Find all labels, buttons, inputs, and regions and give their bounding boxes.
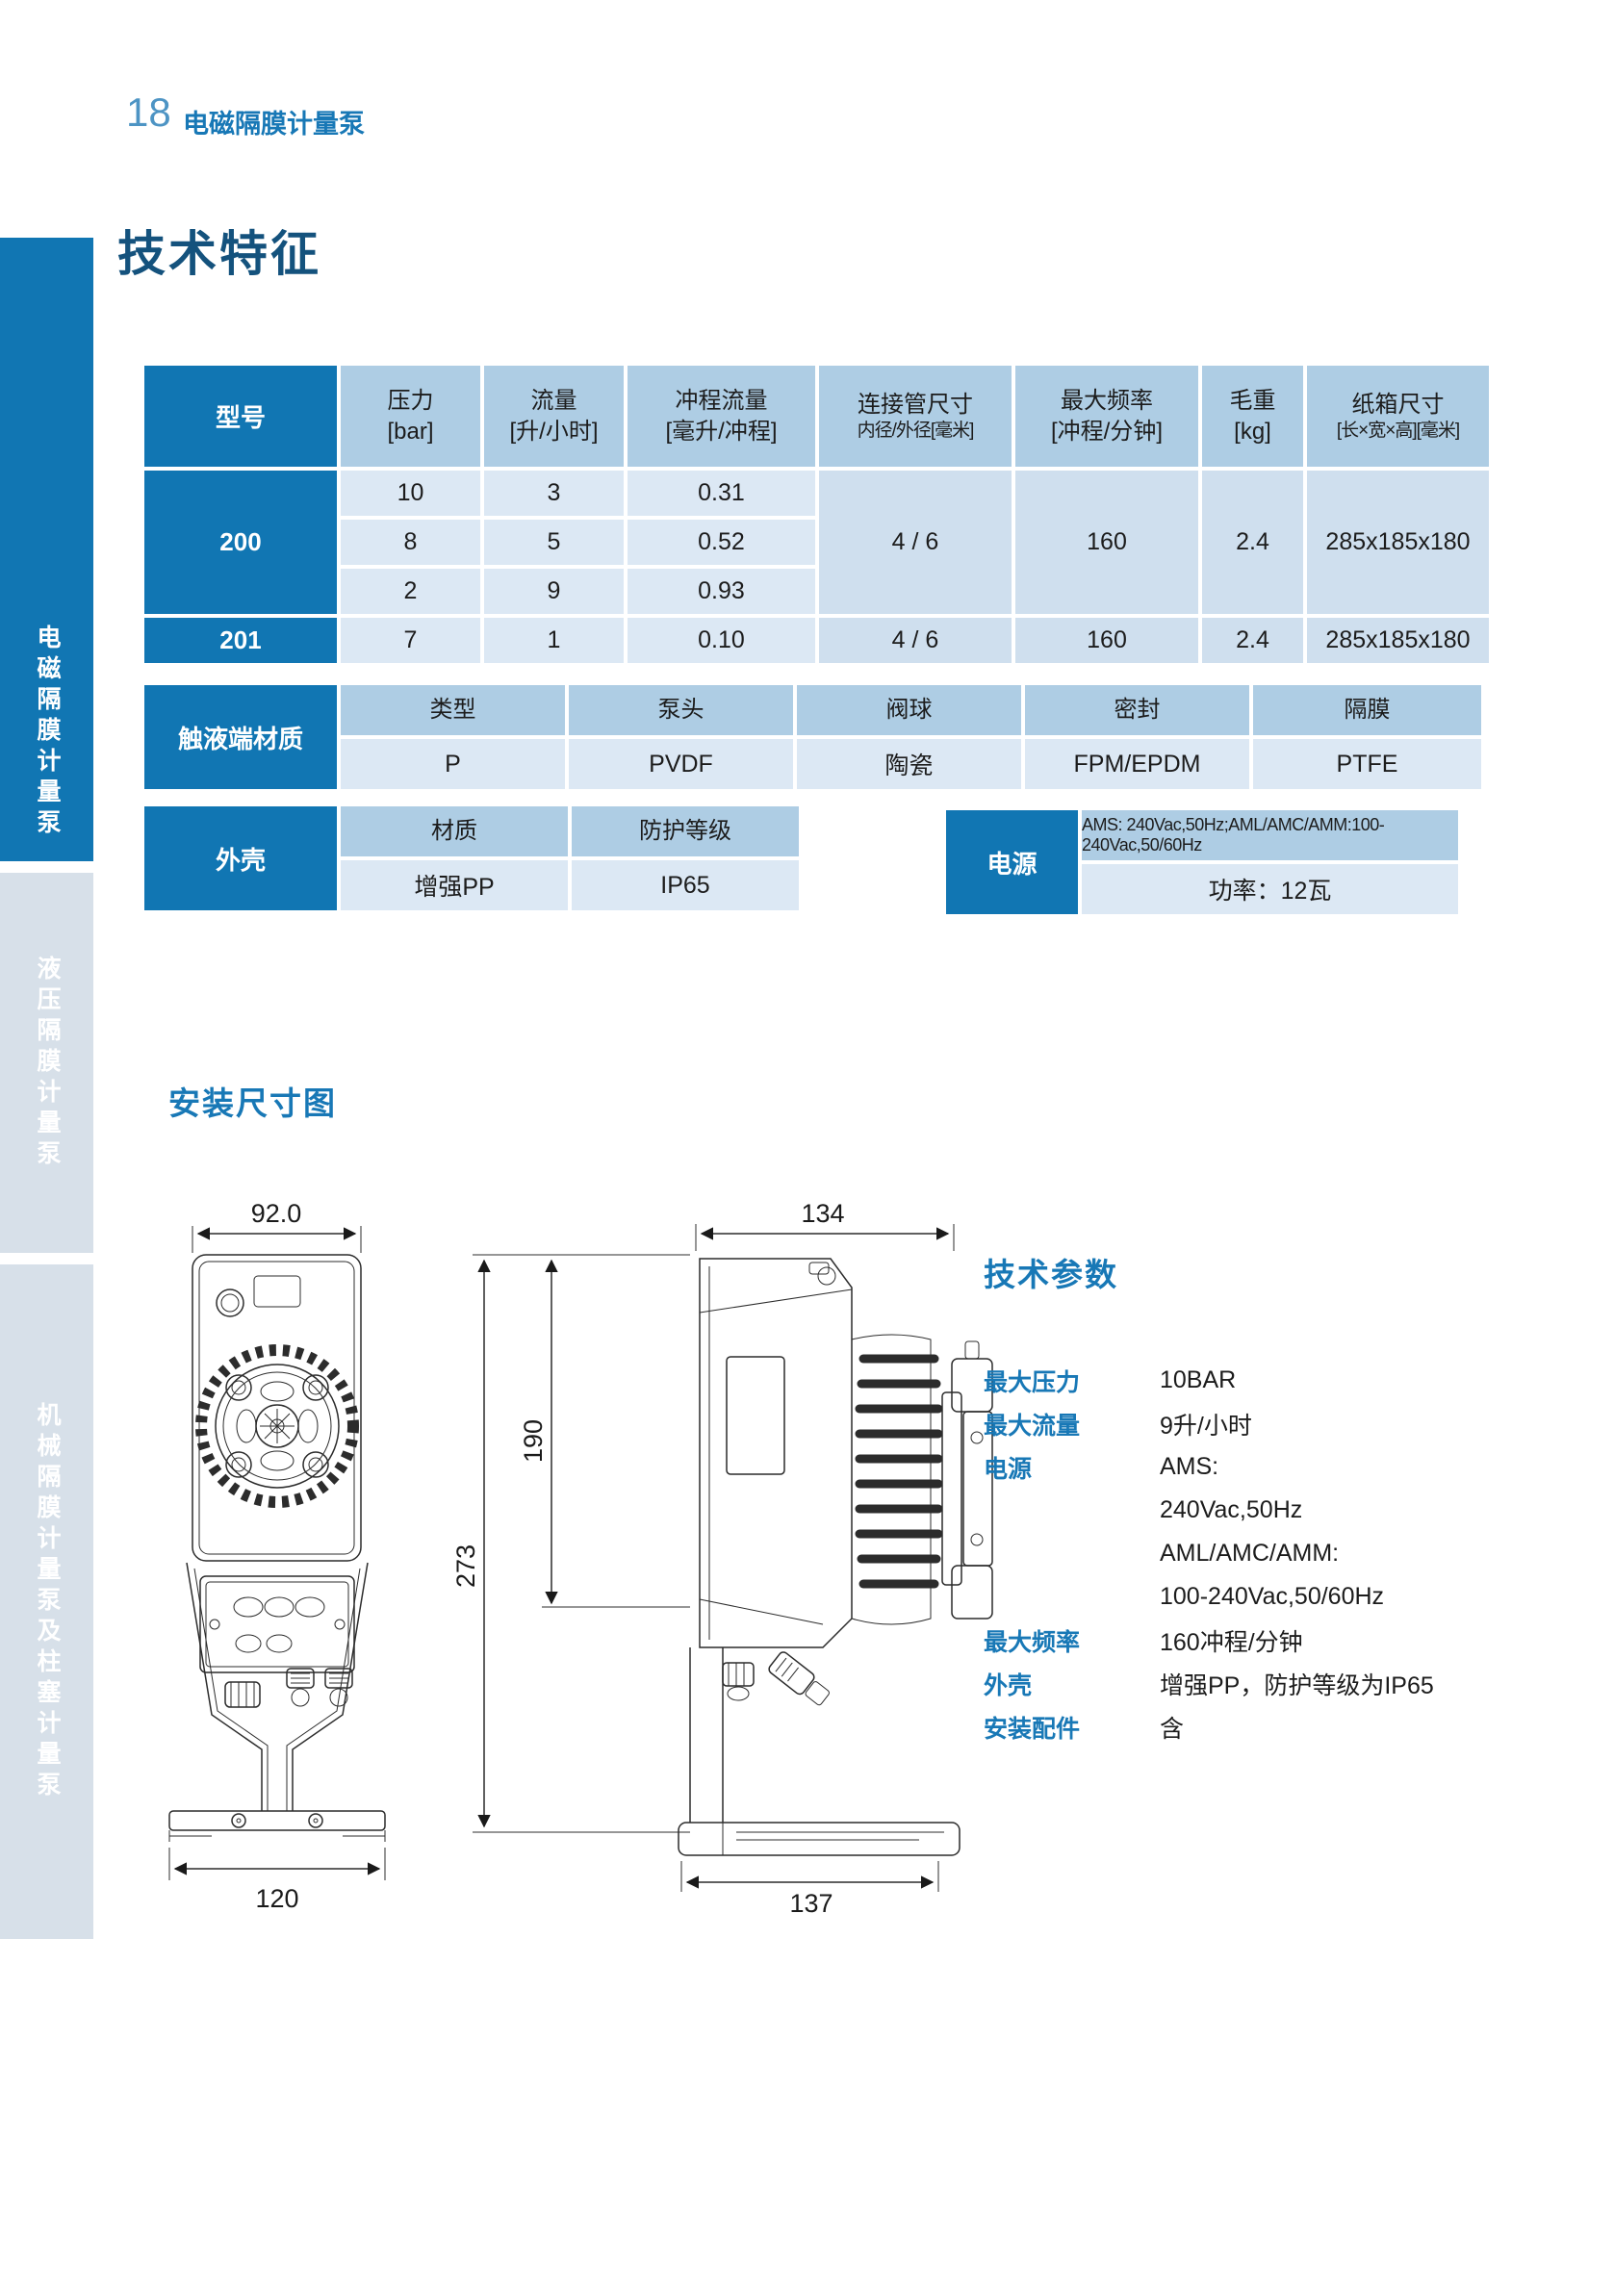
dimension-label-base-depth: 137: [789, 1889, 833, 1917]
cell-pressure: 7: [341, 618, 480, 663]
header-cell-valve-ball: 阀球: [797, 685, 1021, 735]
cell-pressure: 2: [341, 569, 480, 614]
table-row: P PVDF 陶瓷 FPM/EPDM PTFE: [144, 739, 1481, 789]
header-cell-max-frequency: 最大频率[冲程/分钟]: [1015, 366, 1198, 467]
table-header-row: 型号 压力[bar] 流量[升/小时] 冲程流量[毫升/冲程] 连接管尺寸内径/…: [144, 366, 1489, 467]
cell-stroke: 0.93: [628, 569, 815, 614]
param-value: 含: [1160, 1710, 1184, 1745]
page-number: 18: [126, 89, 171, 136]
param-value: 160冲程/分钟: [1160, 1623, 1303, 1658]
param-row-power-cont: 240Vac,50Hz: [984, 1489, 1503, 1532]
cell-flow: 3: [484, 471, 624, 516]
side-view-drawing: 273 190 134: [438, 1195, 996, 1917]
cell-gross-weight: 2.4: [1202, 618, 1303, 663]
sidebar-tab-mechanical[interactable]: 机械隔膜计量泵及柱塞计量泵: [0, 1264, 93, 1939]
dimension-label-width: 92.0: [251, 1199, 302, 1228]
param-label: 最大频率: [984, 1623, 1160, 1658]
cell-pipe-size: 4 / 6: [819, 471, 1012, 614]
page-category: 电磁隔膜计量泵: [183, 103, 365, 140]
model-cell-200: 200: [144, 471, 337, 614]
dimension-label-base: 120: [255, 1884, 298, 1913]
cell-flow: 9: [484, 569, 624, 614]
cell-pressure: 10: [341, 471, 480, 516]
header-cell-carton-size: 纸箱尺寸[长×宽×高][毫米]: [1307, 366, 1489, 467]
param-value: 100-240Vac,50/60Hz: [1160, 1583, 1384, 1611]
cell-material: 增强PP: [341, 860, 568, 910]
housing-label: 外壳: [144, 806, 337, 910]
param-label: 电源: [984, 1450, 1160, 1485]
cell-carton-size: 285x185x180: [1307, 471, 1489, 614]
wetted-material-label: 触液端材质: [144, 685, 337, 789]
sidebar-tab-label: 电磁隔膜计量泵: [35, 625, 59, 840]
param-label: 安装配件: [984, 1710, 1160, 1745]
param-row-max-pressure: 最大压力 10BAR: [984, 1359, 1503, 1402]
table-header-row: 外壳 材质 防护等级: [144, 806, 799, 856]
cell-flow: 1: [484, 618, 624, 663]
installation-heading: 安装尺寸图: [168, 1078, 337, 1124]
header-cell-model: 型号: [144, 366, 337, 467]
cell-flow: 5: [484, 520, 624, 565]
header-cell-stroke-volume: 冲程流量[毫升/冲程]: [628, 366, 815, 467]
cell-diaphragm: PTFE: [1253, 739, 1481, 789]
header-cell-gross-weight: 毛重[kg]: [1202, 366, 1303, 467]
cell-stroke: 0.52: [628, 520, 815, 565]
param-label: 最大流量: [984, 1407, 1160, 1441]
cell-pipe-size: 4 / 6: [819, 618, 1012, 663]
param-row-mounting-kit: 安装配件 含: [984, 1705, 1503, 1748]
param-value: AMS:: [1160, 1453, 1218, 1481]
cell-max-frequency: 160: [1015, 471, 1198, 614]
param-value: AML/AMC/AMM:: [1160, 1540, 1339, 1568]
table-row: 200 10 3 0.31 4 / 6 160 2.4 285x185x180: [144, 471, 1489, 516]
param-value: 9升/小时: [1160, 1407, 1252, 1441]
power-wattage-value: 功率：12瓦: [1082, 864, 1458, 914]
header-cell-material: 材质: [341, 806, 568, 856]
header-cell-diaphragm: 隔膜: [1253, 685, 1481, 735]
power-label: 电源: [946, 810, 1078, 914]
dimension-label-height2: 190: [519, 1419, 548, 1463]
cell-valve-ball: 陶瓷: [797, 739, 1021, 789]
header-cell-pump-head: 泵头: [569, 685, 793, 735]
page-title: 技术特征: [117, 216, 321, 285]
cell-protection: IP65: [572, 860, 799, 910]
cell-type: P: [341, 739, 565, 789]
sidebar-tab-label: 液压隔膜计量泵: [35, 956, 59, 1171]
cell-max-frequency: 160: [1015, 618, 1198, 663]
tech-params-heading: 技术参数: [984, 1249, 1118, 1295]
model-spec-table: 型号 压力[bar] 流量[升/小时] 冲程流量[毫升/冲程] 连接管尺寸内径/…: [141, 362, 1493, 667]
cell-stroke: 0.10: [628, 618, 815, 663]
dimension-label-depth: 134: [801, 1199, 844, 1228]
header-cell-pressure: 压力[bar]: [341, 366, 480, 467]
power-supply-value: AMS: 240Vac,50Hz;AML/AMC/AMM:100-240Vac,…: [1082, 810, 1458, 860]
cell-pressure: 8: [341, 520, 480, 565]
dimension-label-height: 273: [451, 1544, 480, 1588]
param-value: 240Vac,50Hz: [1160, 1496, 1302, 1524]
table-row: 201 7 1 0.10 4 / 6 160 2.4 285x185x180: [144, 618, 1489, 663]
param-row-housing: 外壳 增强PP，防护等级为IP65: [984, 1662, 1503, 1705]
cell-pump-head: PVDF: [569, 739, 793, 789]
sidebar-tab-hydraulic[interactable]: 液压隔膜计量泵: [0, 873, 93, 1253]
param-row-power-cont: 100-240Vac,50/60Hz: [984, 1575, 1503, 1619]
param-row-max-flow: 最大流量 9升/小时: [984, 1402, 1503, 1445]
param-row-power: 电源 AMS:: [984, 1445, 1503, 1489]
param-row-power-cont: AML/AMC/AMM:: [984, 1532, 1503, 1575]
header-cell-protection: 防护等级: [572, 806, 799, 856]
cell-stroke: 0.31: [628, 471, 815, 516]
param-label: 最大压力: [984, 1364, 1160, 1398]
param-label: 外壳: [984, 1667, 1160, 1701]
param-value: 10BAR: [1160, 1366, 1236, 1394]
header-cell-flow: 流量[升/小时]: [484, 366, 624, 467]
housing-table: 外壳 材质 防护等级 增强PP IP65: [141, 803, 803, 914]
param-value: 增强PP，防护等级为IP65: [1160, 1667, 1434, 1701]
wetted-material-table: 触液端材质 类型 泵头 阀球 密封 隔膜 P PVDF 陶瓷 FPM/EPDM …: [141, 681, 1485, 793]
cell-gross-weight: 2.4: [1202, 471, 1303, 614]
header-cell-seal: 密封: [1025, 685, 1249, 735]
param-row-max-frequency: 最大频率 160冲程/分钟: [984, 1619, 1503, 1662]
tech-params-list: 最大压力 10BAR 最大流量 9升/小时 电源 AMS: 240Vac,50H…: [984, 1359, 1503, 1748]
sidebar-tab-label: 机械隔膜计量泵及柱塞计量泵: [35, 1402, 59, 1802]
table-header-row: 触液端材质 类型 泵头 阀球 密封 隔膜: [144, 685, 1481, 735]
cell-seal: FPM/EPDM: [1025, 739, 1249, 789]
sidebar-tab-electromagnetic[interactable]: 电磁隔膜计量泵: [0, 238, 93, 861]
cell-carton-size: 285x185x180: [1307, 618, 1489, 663]
header-cell-type: 类型: [341, 685, 565, 735]
header-cell-pipe-size: 连接管尺寸内径/外径[毫米]: [819, 366, 1012, 467]
model-cell-201: 201: [144, 618, 337, 663]
